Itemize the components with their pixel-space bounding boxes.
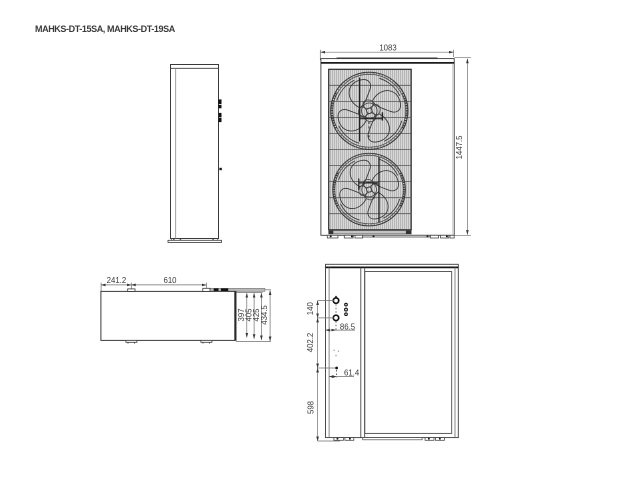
- svg-text:1083: 1083: [379, 43, 396, 52]
- svg-text:61.4: 61.4: [344, 368, 360, 377]
- svg-text:86.5: 86.5: [340, 323, 356, 332]
- svg-text:MAHKS-DT-15SA, MAHKS-DT-19SA: MAHKS-DT-15SA, MAHKS-DT-19SA: [35, 24, 176, 34]
- svg-text:1447.5: 1447.5: [455, 135, 464, 160]
- svg-text:241.2: 241.2: [107, 276, 127, 285]
- svg-text:598: 598: [307, 401, 316, 414]
- svg-text:610: 610: [163, 276, 177, 285]
- svg-text:140: 140: [306, 302, 315, 316]
- svg-text:434.5: 434.5: [260, 305, 269, 325]
- svg-text:402.2: 402.2: [306, 333, 315, 353]
